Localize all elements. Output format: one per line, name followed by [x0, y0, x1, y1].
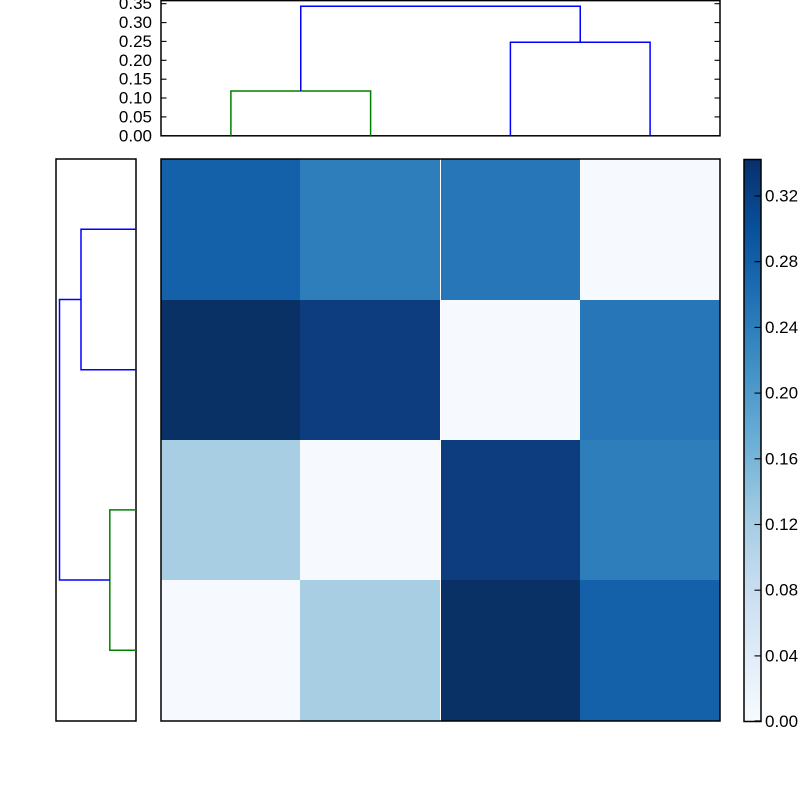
- svg-text:0.00: 0.00: [119, 126, 152, 145]
- svg-text:0.10: 0.10: [119, 89, 152, 108]
- svg-text:0.12: 0.12: [765, 515, 798, 534]
- svg-text:0.24: 0.24: [765, 318, 798, 337]
- svg-text:0.20: 0.20: [765, 384, 798, 403]
- svg-text:0.00: 0.00: [765, 712, 798, 731]
- svg-text:0.16: 0.16: [765, 449, 798, 468]
- svg-text:0.28: 0.28: [765, 252, 798, 271]
- svg-text:0.25: 0.25: [119, 32, 152, 51]
- svg-text:0.05: 0.05: [119, 107, 152, 126]
- svg-text:0.08: 0.08: [765, 581, 798, 600]
- svg-text:0.35: 0.35: [119, 0, 152, 13]
- svg-text:0.20: 0.20: [119, 51, 152, 70]
- svg-text:0.32: 0.32: [765, 187, 798, 206]
- svg-text:0.15: 0.15: [119, 70, 152, 89]
- svg-text:0.30: 0.30: [119, 13, 152, 32]
- svg-text:0.04: 0.04: [765, 646, 798, 665]
